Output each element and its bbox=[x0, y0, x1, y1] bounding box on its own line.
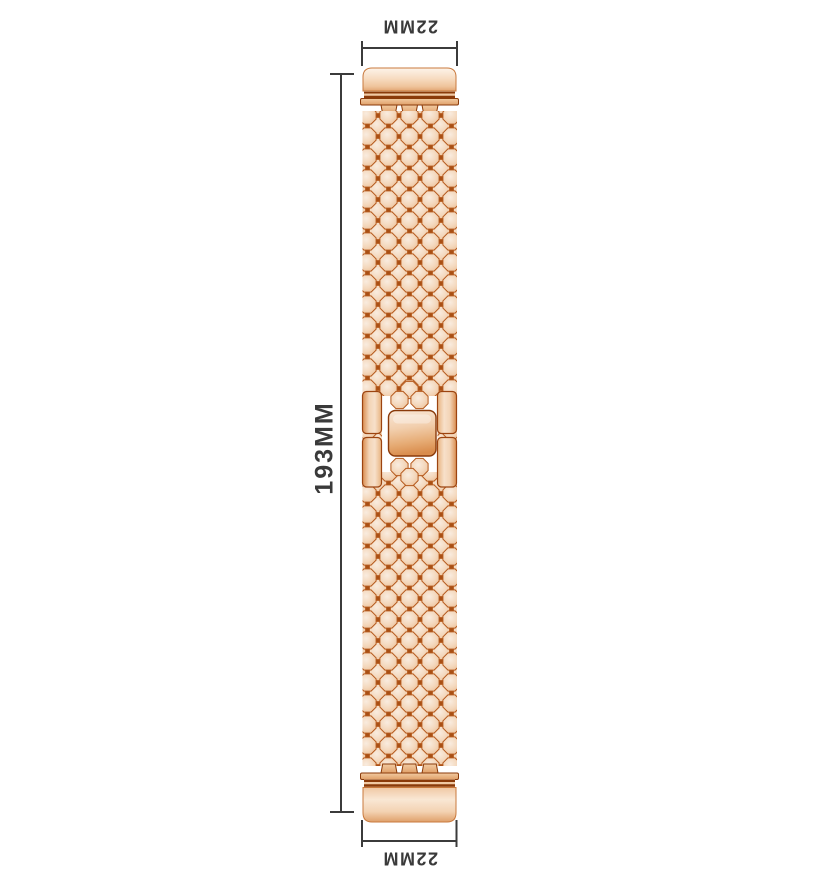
bottom-tabs bbox=[381, 764, 438, 773]
length-label: 193MM bbox=[311, 401, 340, 494]
top-connector bbox=[361, 68, 459, 114]
watch-band-illustration bbox=[0, 0, 820, 890]
top-width-label: 22MM bbox=[381, 16, 437, 37]
bottom-connector bbox=[361, 764, 459, 822]
bottom-width-dimension bbox=[362, 820, 457, 847]
bottom-width-label: 22MM bbox=[381, 848, 437, 869]
watch-band bbox=[361, 68, 459, 822]
product-dimension-diagram: 22MM 193MM 22MM bbox=[0, 0, 820, 890]
top-width-dimension bbox=[362, 41, 457, 66]
